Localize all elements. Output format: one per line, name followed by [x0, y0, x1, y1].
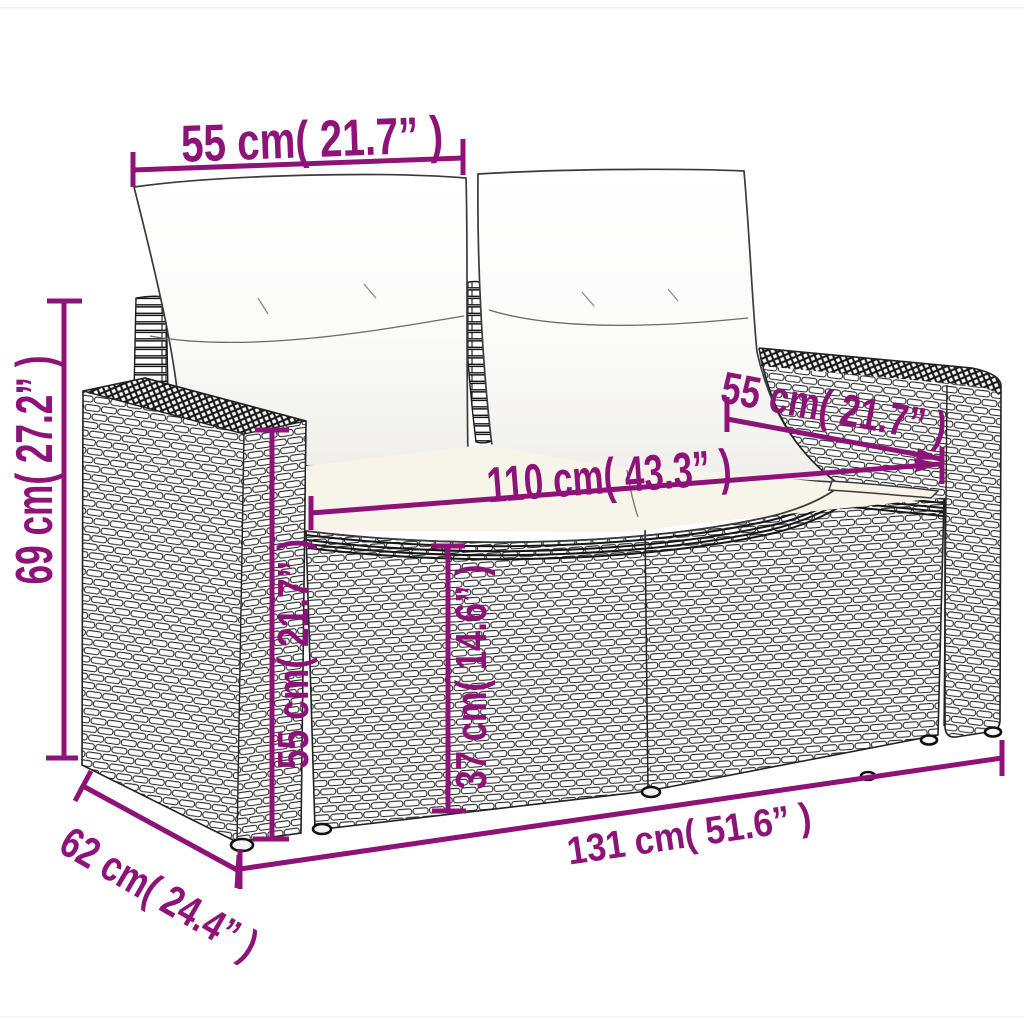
svg-text:55 cm( 21.7” ): 55 cm( 21.7” ) [180, 106, 444, 174]
svg-text:55 cm( 21.7” ): 55 cm( 21.7” ) [269, 539, 318, 769]
svg-text:69 cm( 27.2” ): 69 cm( 27.2” ) [6, 356, 64, 585]
svg-text:37 cm( 14.6” ): 37 cm( 14.6” ) [447, 565, 496, 790]
